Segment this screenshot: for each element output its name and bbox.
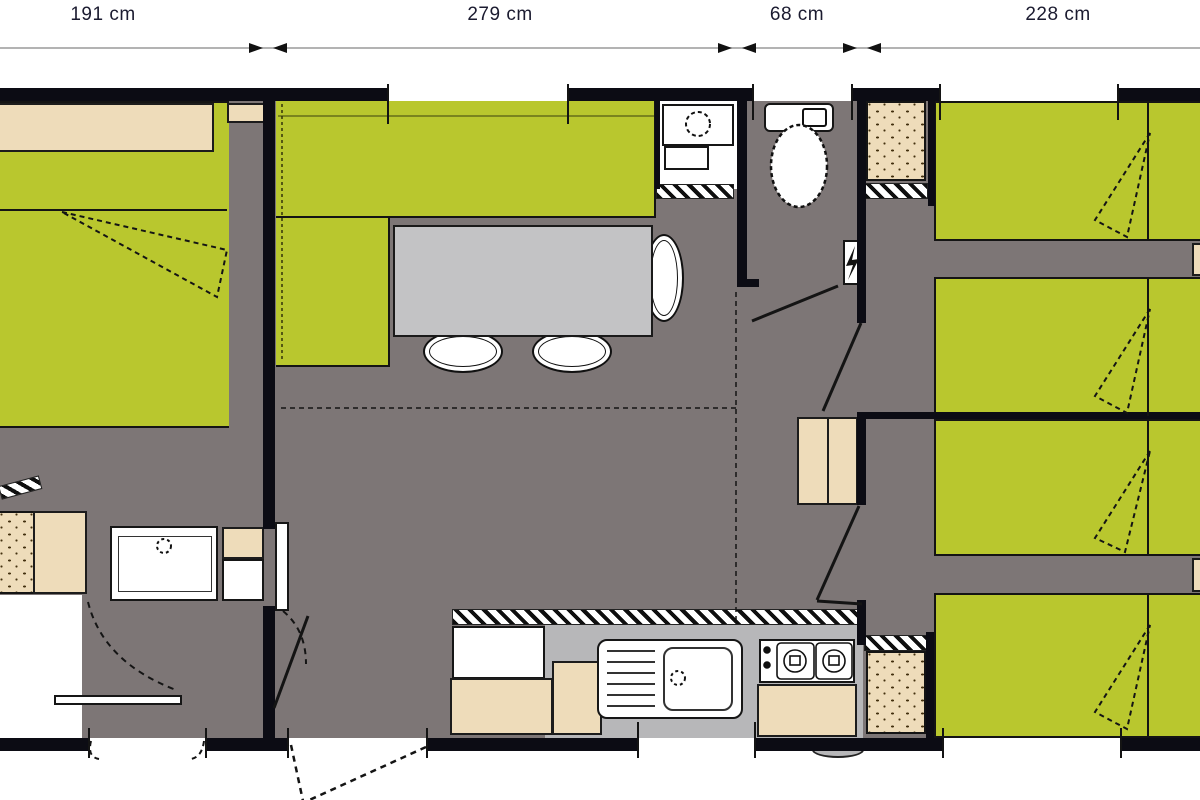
- single-bed: [934, 419, 1200, 556]
- shower-room-floor: [0, 595, 82, 739]
- bottom-wall: [427, 738, 638, 751]
- low-shelf: [222, 559, 264, 601]
- single-bed: [934, 277, 1200, 418]
- door-leaf: [54, 695, 182, 705]
- bed-headboard-shelf: [0, 103, 214, 152]
- kitchen-cabinet: [450, 678, 553, 735]
- washbasin-shelf: [664, 146, 709, 170]
- bottom-wall: [1121, 738, 1200, 751]
- corridor-wall: [857, 101, 866, 323]
- single-bed: [934, 101, 1200, 241]
- worktop-edge-hatch: [452, 609, 863, 625]
- bottom-wall: [206, 738, 288, 751]
- top-wall: [852, 88, 940, 101]
- corridor-wall: [857, 600, 866, 645]
- top-wall: [0, 88, 388, 101]
- entrance-door-swing: [291, 745, 303, 800]
- threshold-hatch: [864, 635, 928, 651]
- wc-wall: [737, 101, 747, 287]
- shower-tray-inner: [118, 536, 212, 592]
- dining-table: [393, 225, 653, 337]
- kids-room-divider-wall: [857, 412, 1200, 419]
- wc-wall-stub: [737, 279, 759, 287]
- window-shutter-arc: [191, 741, 204, 759]
- top-wall: [1118, 88, 1200, 101]
- wardrobe-dotted: [866, 651, 926, 734]
- top-wall: [568, 88, 753, 101]
- threshold-hatch: [656, 184, 734, 199]
- single-bed: [934, 593, 1200, 738]
- washbasin-counter: [662, 104, 734, 146]
- dimension-header: 191 cm 279 cm 68 cm 228 cm: [0, 0, 1200, 88]
- bathroom-wall: [655, 101, 660, 189]
- floor-plan: 191 cm 279 cm 68 cm 228 cm: [0, 0, 1200, 800]
- toilet-cistern: [764, 103, 834, 132]
- wall-cabinet: [222, 527, 264, 559]
- shower-tray: [110, 526, 218, 601]
- bedroom-partition-wall: [263, 606, 275, 738]
- entrance-door-swing: [305, 747, 426, 800]
- window-shutter-arc: [90, 741, 99, 759]
- stove: [759, 639, 855, 683]
- bedroom-cabinet: [33, 511, 87, 594]
- stove-cabinet: [757, 684, 857, 737]
- wardrobe-dotted: [866, 101, 926, 181]
- corridor-wall: [857, 412, 866, 505]
- sofa-top-arm: [276, 101, 656, 218]
- aisle-shelf: [1192, 243, 1200, 276]
- bedside-shelf: [227, 103, 266, 123]
- kitchen-cabinet: [552, 661, 602, 735]
- bedroom-partition-wall: [263, 101, 275, 529]
- fridge: [452, 626, 545, 679]
- door-leaf: [275, 522, 289, 611]
- wardrobe-side-wall: [928, 101, 935, 206]
- dimension-line: [0, 0, 1200, 88]
- wardrobe-dotted: [0, 511, 35, 594]
- sink-bowl: [663, 647, 733, 711]
- bottom-wall: [755, 738, 943, 751]
- wardrobe-side-wall: [926, 632, 934, 738]
- corridor-shelf: [797, 417, 858, 505]
- aisle-shelf: [1192, 558, 1200, 592]
- threshold-hatch: [864, 183, 928, 199]
- bottom-wall: [0, 738, 89, 751]
